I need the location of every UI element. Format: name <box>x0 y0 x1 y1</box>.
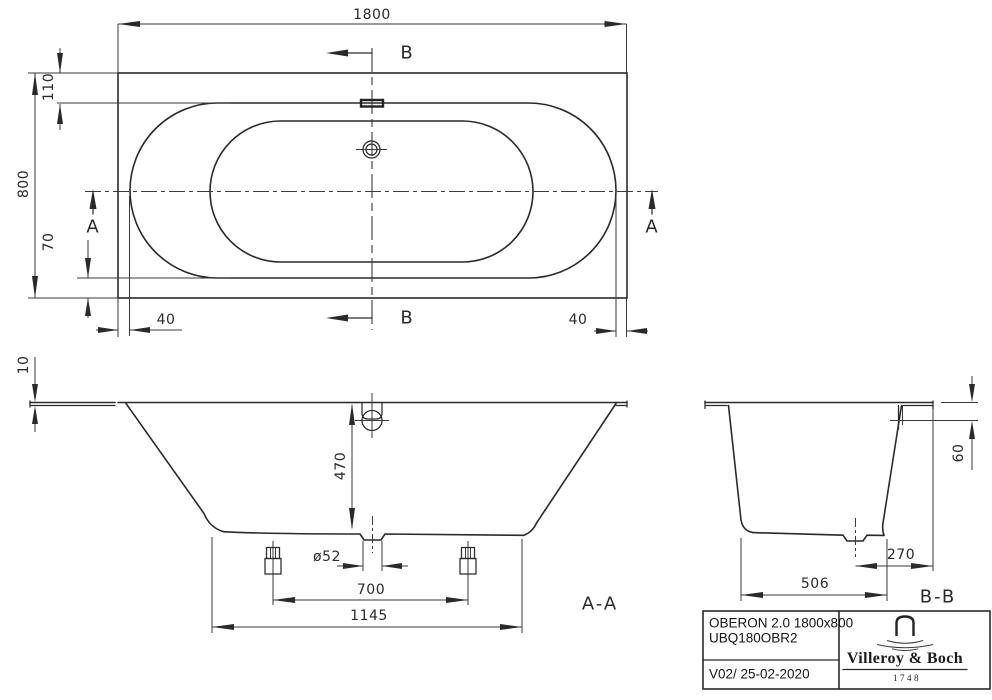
dim-label-inner-depth: 470 <box>333 452 349 480</box>
arrowhead <box>118 21 140 27</box>
arrowhead <box>343 563 363 569</box>
logo-wave <box>877 645 933 648</box>
arrowhead <box>32 73 38 95</box>
dim-label-feet-spacing: 700 <box>357 582 385 598</box>
dim-label-support-length: 1145 <box>350 608 388 624</box>
foot-icon-right <box>460 541 476 582</box>
arrowhead <box>500 624 522 630</box>
arrowhead <box>32 384 38 402</box>
dim-label-rim-height: 60 <box>951 444 967 463</box>
drawing-canvas <box>0 0 992 700</box>
title-block-version: V02/ 25-02-2020 <box>709 667 810 682</box>
arrowhead <box>85 258 91 278</box>
plan-view <box>57 48 658 330</box>
section-bb-dimensions <box>741 376 978 601</box>
arrowhead <box>212 624 234 630</box>
tub-bottom <box>224 532 524 540</box>
tub-wall-right <box>524 404 616 536</box>
arrowhead <box>326 50 348 57</box>
title-block-product: OBERON 2.0 1800x800 <box>709 616 853 631</box>
tub-rim-oval <box>130 103 616 278</box>
arrowhead <box>865 592 887 598</box>
section-aa-dimensions <box>32 357 522 633</box>
section-aa-label: A-A <box>582 594 618 615</box>
dim-label-rim-thickness: 10 <box>16 356 32 375</box>
arrowhead <box>382 563 402 569</box>
dim-label-rim-bottom: 70 <box>41 233 57 252</box>
tub-wall-left <box>126 404 224 532</box>
dim-label-bottom-width: 506 <box>801 576 829 592</box>
arrowhead <box>596 328 616 334</box>
logo-wave <box>887 641 923 644</box>
foot-icon-left <box>265 541 281 582</box>
dim-label-drain-offset: 270 <box>887 547 915 563</box>
dim-label-overall-width: 800 <box>16 170 32 198</box>
brand-year: 1748 <box>893 673 921 683</box>
section-a-label-left: A <box>86 217 99 238</box>
tub-wall-left <box>729 406 754 533</box>
drain-icon <box>356 141 387 158</box>
arrowhead <box>349 508 355 530</box>
arrowhead <box>57 104 63 124</box>
dim-label-rim-right: 40 <box>569 312 588 328</box>
arrowhead <box>969 384 975 402</box>
dim-label-drain-diameter: ø52 <box>313 549 341 565</box>
technical-drawing-sheet: 1800 800 110 70 40 40 B B A A 10 470 ø52… <box>0 0 992 700</box>
arrowhead <box>741 592 763 598</box>
arrowhead <box>969 421 975 439</box>
arrowhead <box>326 315 348 322</box>
tub-bottom <box>753 533 884 541</box>
arrowhead <box>130 327 150 333</box>
arrowhead <box>856 563 878 569</box>
arrowhead <box>85 298 91 316</box>
plan-dimensions <box>28 21 656 337</box>
dim-label-overall-length: 1800 <box>353 7 391 23</box>
section-b-label-bottom: B <box>400 308 413 329</box>
section-b-label-top: B <box>400 43 413 64</box>
dim-label-rim-top: 110 <box>41 73 57 101</box>
brand-name: Villeroy & Boch <box>847 650 963 668</box>
arrowhead <box>349 404 355 426</box>
arrowhead <box>605 21 627 27</box>
arrowhead <box>273 597 295 603</box>
section-bb-view <box>705 401 933 557</box>
overflow-icon <box>355 393 389 438</box>
arrowhead <box>57 53 63 73</box>
logo-faucet <box>897 617 914 637</box>
arrowhead <box>32 406 38 424</box>
arrowhead <box>32 276 38 298</box>
arrowhead <box>446 597 468 603</box>
dim-label-rim-left: 40 <box>157 312 176 328</box>
arrowhead <box>627 328 647 334</box>
arrowhead <box>911 563 933 569</box>
section-bb-label: B-B <box>920 587 957 608</box>
title-block-article: UBQ180OBR2 <box>709 631 798 646</box>
arrowhead <box>98 327 118 333</box>
section-a-label-right: A <box>645 217 658 238</box>
